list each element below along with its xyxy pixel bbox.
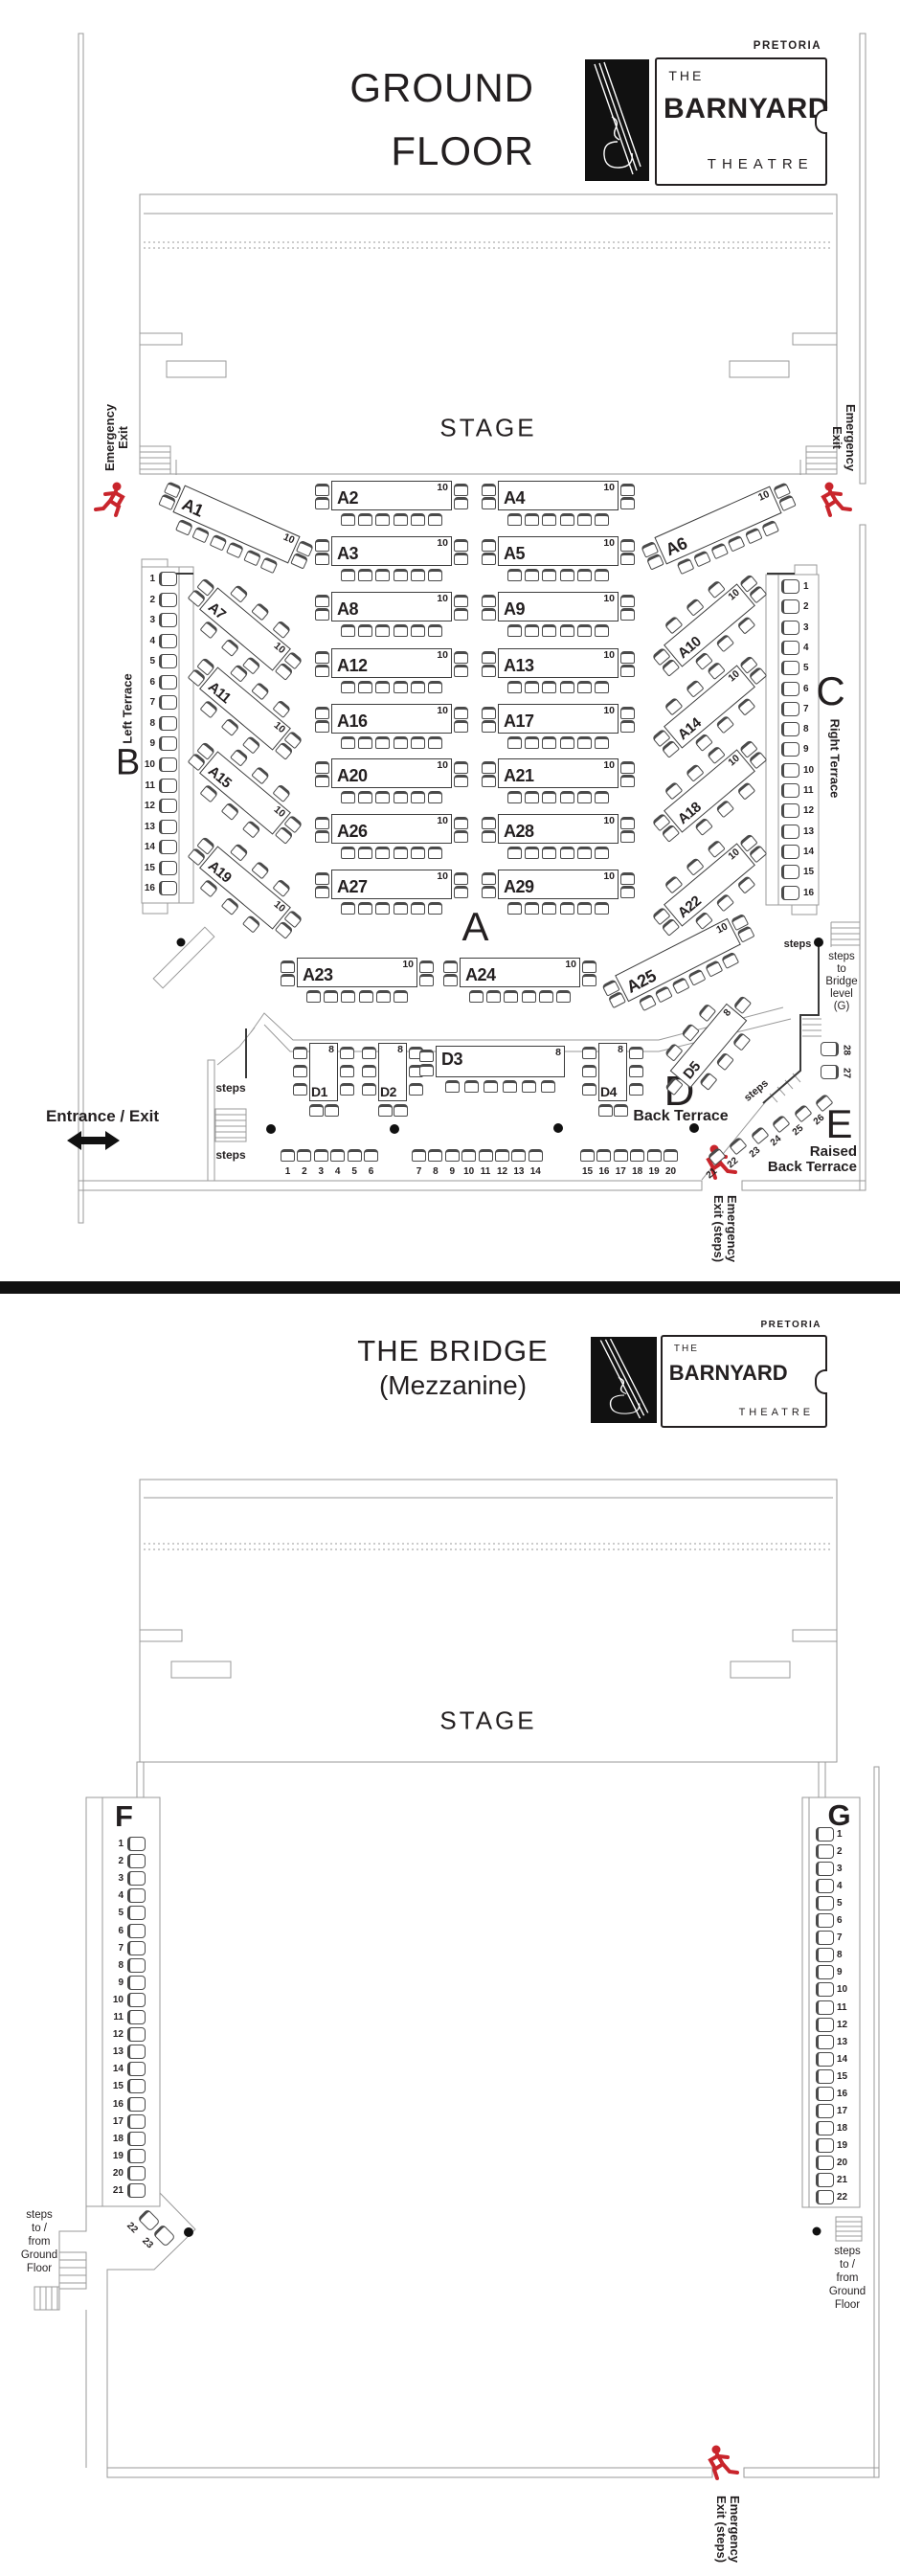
chair <box>411 791 425 803</box>
table-D1: D18 <box>309 1043 338 1101</box>
seat-number: 3 <box>803 622 819 633</box>
chair <box>341 990 355 1003</box>
seat-number: 13 <box>510 1166 527 1177</box>
seat-number: 1 <box>803 581 819 592</box>
chair <box>419 1064 434 1076</box>
seat-F-16 <box>127 2097 146 2112</box>
seat-number: 15 <box>579 1166 596 1177</box>
table-label: A28 <box>504 822 534 842</box>
chair <box>419 960 434 973</box>
seat-G-2 <box>816 1844 834 1859</box>
pillar <box>177 938 186 947</box>
chair <box>560 513 574 526</box>
chair <box>504 990 518 1003</box>
chair <box>341 847 355 859</box>
seat-G-8 <box>816 1948 834 1962</box>
seat-F-14 <box>127 2062 146 2076</box>
seat-number: 14 <box>528 1166 544 1177</box>
chair <box>582 1083 596 1096</box>
section-e-letter: E <box>825 1101 853 1147</box>
seat-number: 4 <box>803 643 819 653</box>
seat-number: 2 <box>803 601 819 612</box>
chair <box>375 736 390 749</box>
chair <box>315 595 329 607</box>
seat-number: 11 <box>803 785 819 796</box>
seat-C-2 <box>781 599 799 614</box>
chair <box>525 736 539 749</box>
seat-C-10 <box>781 763 799 778</box>
seat-B-16 <box>159 881 177 895</box>
chair <box>428 681 442 693</box>
seat-row-16 <box>596 1149 611 1162</box>
chair <box>358 513 372 526</box>
chair <box>325 1104 339 1117</box>
chair <box>577 681 592 693</box>
seat-number: 1 <box>280 1166 296 1177</box>
chair <box>577 791 592 803</box>
chair <box>577 569 592 581</box>
table-label: D2 <box>380 1084 396 1099</box>
chair <box>454 608 468 621</box>
chair <box>560 736 574 749</box>
table-A16: A1610 <box>331 704 452 734</box>
table-label: A5 <box>504 544 525 564</box>
chair <box>394 1104 408 1117</box>
barnyard-logo-ticket: THE BARNYARD THEATRE <box>655 57 827 186</box>
seat-number: 2 <box>140 595 155 605</box>
seat-number: 7 <box>140 697 155 708</box>
seat-G-1 <box>816 1827 834 1842</box>
seat-number: 13 <box>837 2037 856 2047</box>
seat-C-12 <box>781 803 799 818</box>
seat-number: 8 <box>837 1950 856 1960</box>
seat-number: 13 <box>101 2046 124 2057</box>
table-A3: A310 <box>331 536 452 566</box>
chair <box>507 847 522 859</box>
chair <box>620 886 635 898</box>
chair <box>315 830 329 843</box>
table-label: A17 <box>504 712 534 732</box>
chair <box>560 681 574 693</box>
logo-theatre: THEATRE <box>739 1407 815 1418</box>
chair <box>507 569 522 581</box>
bridge-wall-bottom <box>107 2468 712 2477</box>
chair <box>378 1104 393 1117</box>
seat-F-15 <box>127 2079 146 2093</box>
seat-F-20 <box>127 2166 146 2181</box>
table-D3: D38 <box>436 1046 565 1077</box>
seat-number: 16 <box>837 2089 856 2099</box>
seat-number: 2 <box>837 1846 856 1857</box>
seat-number: 1 <box>837 1829 856 1840</box>
seat-number: 6 <box>101 1926 124 1936</box>
chair <box>525 681 539 693</box>
chair <box>315 651 329 664</box>
chair <box>507 624 522 637</box>
seat-number: 11 <box>140 780 155 791</box>
chair <box>595 791 609 803</box>
seat-number: 19 <box>646 1166 663 1177</box>
seat-C-3 <box>781 621 799 635</box>
chair <box>454 775 468 787</box>
table-A12: A1210 <box>331 648 452 678</box>
chair <box>419 974 434 986</box>
chair <box>315 608 329 621</box>
chair <box>582 960 596 973</box>
seat-row-18 <box>630 1149 644 1162</box>
chair <box>428 736 442 749</box>
seat-B-9 <box>159 736 177 751</box>
chair <box>620 761 635 774</box>
seat-F-2 <box>127 1854 146 1868</box>
seat-C-14 <box>781 845 799 859</box>
table-capacity: 10 <box>603 649 615 661</box>
seat-row-15 <box>580 1149 595 1162</box>
chair <box>482 608 496 621</box>
seat-number: 7 <box>803 704 819 714</box>
chair <box>577 847 592 859</box>
steps-to-ground-label: steps to / from Ground Floor <box>11 2208 67 2275</box>
table-label: A26 <box>337 822 368 842</box>
chair <box>394 624 408 637</box>
chair <box>482 817 496 829</box>
chair <box>454 484 468 496</box>
seat-G-12 <box>816 2018 834 2032</box>
seat-number: 16 <box>596 1166 612 1177</box>
table-A2: A210 <box>331 481 452 510</box>
table-label: A12 <box>337 656 368 676</box>
chair <box>315 886 329 898</box>
table-label: D1 <box>311 1084 327 1099</box>
pillar <box>814 938 823 947</box>
chair <box>620 484 635 496</box>
seat-number: 14 <box>101 2064 124 2074</box>
chair <box>315 817 329 829</box>
entrance-exit-label: Entrance / Exit <box>46 1107 159 1126</box>
seat-G-14 <box>816 2052 834 2067</box>
emergency-exit-right-label: Emergency Exit <box>830 404 857 471</box>
seat-number: 9 <box>803 744 819 755</box>
seat-number: 17 <box>613 1166 629 1177</box>
seat-B-5 <box>159 654 177 668</box>
seat-F-13 <box>127 2045 146 2059</box>
seat-G-5 <box>816 1896 834 1910</box>
seat-number: 4 <box>140 636 155 646</box>
seat-number: 3 <box>140 615 155 625</box>
chair <box>482 595 496 607</box>
seat-row-14 <box>529 1149 543 1162</box>
seat-number: 10 <box>837 1984 856 1995</box>
seat-B-10 <box>159 757 177 772</box>
stage-label: STAGE <box>439 414 536 443</box>
chair <box>362 1083 376 1096</box>
seat-G-15 <box>816 2069 834 2084</box>
seat-F-6 <box>127 1924 146 1938</box>
seat-number: 15 <box>101 2081 124 2091</box>
chair <box>454 539 468 552</box>
chair <box>577 736 592 749</box>
stage-steps-left <box>140 446 170 474</box>
steps-label: steps <box>784 938 812 950</box>
seat-number: 5 <box>101 1908 124 1918</box>
steps-icon <box>802 1019 821 1036</box>
seat-B-3 <box>159 613 177 627</box>
chair <box>281 960 295 973</box>
table-capacity: 10 <box>437 482 448 493</box>
chair <box>315 720 329 733</box>
chair <box>445 1080 460 1093</box>
chair <box>560 902 574 915</box>
chair <box>620 651 635 664</box>
seat-number: 11 <box>837 2002 856 2013</box>
chair <box>359 990 373 1003</box>
chair <box>411 624 425 637</box>
chair <box>620 707 635 719</box>
chair <box>556 990 571 1003</box>
seat-G-17 <box>816 2104 834 2118</box>
chair <box>620 830 635 843</box>
seat-C-1 <box>781 579 799 594</box>
barnyard-logo-ticket: THE BARNYARD THEATRE <box>661 1335 827 1428</box>
seat-number: 6 <box>803 684 819 694</box>
chair <box>620 539 635 552</box>
table-capacity: 10 <box>565 959 576 970</box>
seat-F-10 <box>127 1993 146 2007</box>
seat-number: 19 <box>101 2151 124 2161</box>
seat-G-10 <box>816 1982 834 1997</box>
seat-number: 14 <box>837 2054 856 2065</box>
chair <box>525 624 539 637</box>
right-terrace-label: Right Terrace <box>828 719 843 799</box>
chair <box>362 1047 376 1059</box>
seat-F-12 <box>127 2027 146 2042</box>
logo-name: BARNYARD <box>664 93 829 125</box>
wall-left <box>79 34 83 1223</box>
steps-icon <box>831 922 860 947</box>
chair <box>539 990 553 1003</box>
chair <box>315 761 329 774</box>
chair <box>577 624 592 637</box>
seat-G-3 <box>816 1862 834 1876</box>
emergency-exit-man-icon <box>823 483 850 516</box>
chair <box>394 990 408 1003</box>
seat-B-12 <box>159 799 177 813</box>
chair <box>482 539 496 552</box>
chair <box>428 513 442 526</box>
seat-B-8 <box>159 716 177 731</box>
seat-F-21 <box>127 2183 146 2198</box>
seat-number: 17 <box>837 2106 856 2116</box>
table-capacity: 8 <box>618 1044 623 1055</box>
chair <box>507 791 522 803</box>
chair <box>542 681 556 693</box>
seat-E-27 <box>821 1065 839 1079</box>
table-capacity: 10 <box>437 759 448 771</box>
chair <box>614 1104 628 1117</box>
bridge-title-line2: (Mezzanine) <box>379 1370 527 1401</box>
chair <box>315 707 329 719</box>
pretoria-label: PRETORIA <box>655 40 821 52</box>
bridge-wall-right <box>874 1767 879 2477</box>
chair <box>620 872 635 885</box>
chair <box>454 761 468 774</box>
section-a-letter: A <box>461 904 489 950</box>
chair <box>560 624 574 637</box>
chair <box>358 569 372 581</box>
seat-number: 9 <box>140 738 155 749</box>
table-label: A4 <box>504 488 525 508</box>
seat-number: 15 <box>140 863 155 873</box>
chair <box>525 569 539 581</box>
seat-number: 8 <box>803 724 819 734</box>
chair <box>411 681 425 693</box>
seat-G-9 <box>816 1965 834 1979</box>
chair <box>542 902 556 915</box>
chair <box>595 847 609 859</box>
seat-number: 11 <box>478 1166 494 1177</box>
seat-number: 7 <box>411 1166 427 1177</box>
emergency-exit-steps-label: Emergency Exit (steps) <box>711 1195 738 1262</box>
chair <box>507 513 522 526</box>
chair <box>375 569 390 581</box>
logo-the: THE <box>668 68 704 83</box>
chair <box>394 847 408 859</box>
seat-G-21 <box>816 2173 834 2187</box>
table-label: A3 <box>337 544 358 564</box>
seat-number: 6 <box>363 1166 379 1177</box>
seat-number: 20 <box>837 2158 856 2168</box>
seat-F-8 <box>127 1958 146 1973</box>
chair <box>542 791 556 803</box>
chair <box>482 872 496 885</box>
section-c-letter: C <box>816 668 845 714</box>
seat-row-10 <box>461 1149 476 1162</box>
table-label: A8 <box>337 599 358 620</box>
ground-title-line2: FLOOR <box>287 128 534 174</box>
chair <box>507 902 522 915</box>
chair <box>454 651 468 664</box>
seat-number: 5 <box>347 1166 363 1177</box>
chair <box>541 1080 555 1093</box>
chair <box>340 1047 354 1059</box>
chair <box>542 847 556 859</box>
chair <box>620 817 635 829</box>
table-A24: A2410 <box>460 958 580 987</box>
chair <box>629 1083 643 1096</box>
seat-number: 9 <box>101 1977 124 1988</box>
seat-G-7 <box>816 1931 834 1945</box>
seat-number: 10 <box>140 759 155 770</box>
seat-number: 13 <box>140 822 155 832</box>
seat-B-13 <box>159 820 177 834</box>
seat-F-4 <box>127 1888 146 1903</box>
chair <box>341 513 355 526</box>
chair <box>582 1065 596 1077</box>
seat-number: 3 <box>101 1873 124 1884</box>
chair <box>443 974 458 986</box>
chair <box>309 1104 324 1117</box>
seat-number: 4 <box>837 1881 856 1891</box>
table-capacity: 10 <box>437 537 448 549</box>
table-capacity: 10 <box>603 705 615 716</box>
chair <box>560 569 574 581</box>
chair <box>522 1080 536 1093</box>
chair <box>341 902 355 915</box>
seat-B-11 <box>159 779 177 793</box>
table-capacity: 10 <box>437 649 448 661</box>
seat-B-6 <box>159 675 177 689</box>
seat-G-19 <box>816 2138 834 2153</box>
table-A21: A2110 <box>498 758 619 788</box>
chair <box>542 624 556 637</box>
seat-number: 12 <box>837 2020 856 2030</box>
seat-C-13 <box>781 825 799 839</box>
table-A13: A1310 <box>498 648 619 678</box>
chair <box>595 736 609 749</box>
pillar <box>813 2227 821 2236</box>
seat-number: 4 <box>329 1166 346 1177</box>
chair <box>560 847 574 859</box>
chair <box>522 990 536 1003</box>
seat-F-3 <box>127 1871 146 1886</box>
chair <box>598 1104 613 1117</box>
chair <box>482 553 496 565</box>
chair <box>454 553 468 565</box>
seat-number: 8 <box>101 1960 124 1971</box>
chair <box>454 886 468 898</box>
seat-G-6 <box>816 1913 834 1928</box>
seat-number: 18 <box>629 1166 645 1177</box>
chair <box>375 902 390 915</box>
seat-E-28 <box>821 1042 839 1056</box>
chair <box>482 665 496 677</box>
seat-number: 12 <box>494 1166 510 1177</box>
seat-number: 16 <box>140 883 155 893</box>
floor-divider <box>0 1281 900 1294</box>
chair <box>375 624 390 637</box>
chair <box>629 1047 643 1059</box>
chair <box>411 569 425 581</box>
seat-G-18 <box>816 2121 834 2135</box>
chair <box>341 624 355 637</box>
chair <box>315 539 329 552</box>
seat-F-7 <box>127 1941 146 1955</box>
seat-number: 6 <box>837 1915 856 1926</box>
chair <box>306 990 321 1003</box>
table-label: D4 <box>600 1084 617 1099</box>
ramp <box>153 927 214 988</box>
seat-G-20 <box>816 2156 834 2170</box>
table-label: A27 <box>337 877 368 897</box>
pillar <box>553 1123 563 1133</box>
seat-row-6 <box>364 1149 378 1162</box>
seat-number: 6 <box>140 677 155 688</box>
chair <box>454 595 468 607</box>
chair <box>394 569 408 581</box>
seat-number: 18 <box>101 2134 124 2144</box>
chair <box>482 707 496 719</box>
seat-number: 12 <box>803 805 819 816</box>
seat-number: 3 <box>313 1166 329 1177</box>
seat-number: 9 <box>837 1967 856 1977</box>
chair <box>454 497 468 509</box>
seat-C-5 <box>781 661 799 675</box>
chair <box>341 569 355 581</box>
curtain-line <box>144 242 833 248</box>
chair <box>482 497 496 509</box>
seat-row-8 <box>428 1149 442 1162</box>
chair <box>620 775 635 787</box>
